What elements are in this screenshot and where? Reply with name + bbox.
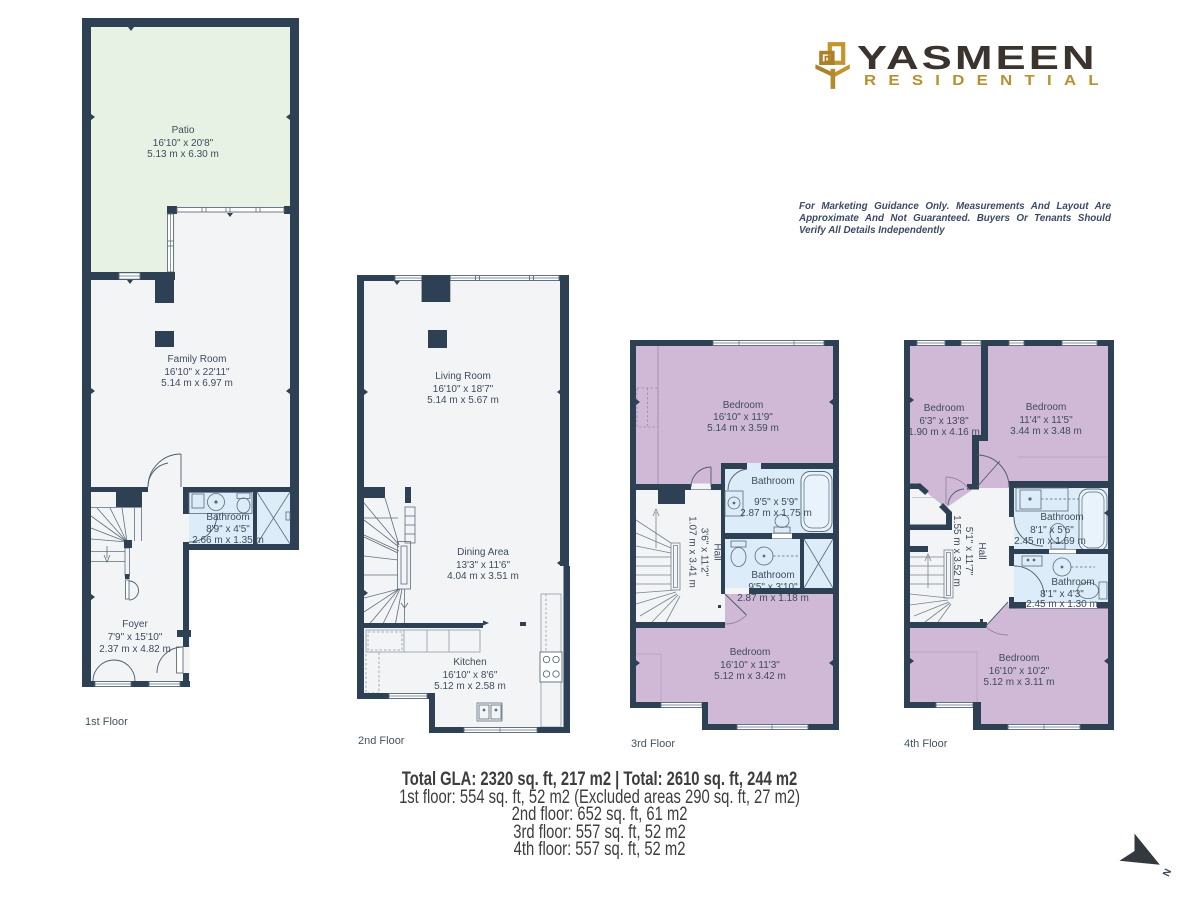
svg-text:16'10" x 20'8": 16'10" x 20'8"	[153, 138, 214, 149]
svg-text:16'10" x 11'9": 16'10" x 11'9"	[713, 412, 773, 423]
svg-text:Bathroom: Bathroom	[751, 476, 794, 487]
svg-text:Living Room: Living Room	[435, 371, 491, 382]
svg-text:2nd Floor: 2nd Floor	[358, 735, 405, 747]
svg-text:Bedroom: Bedroom	[924, 403, 965, 414]
svg-text:Hall: Hall	[976, 542, 987, 559]
svg-text:5.14 m x 6.97 m: 5.14 m x 6.97 m	[161, 378, 233, 389]
svg-text:3rd Floor: 3rd Floor	[631, 738, 675, 750]
svg-text:16'10" x 8'6": 16'10" x 8'6"	[443, 670, 498, 681]
svg-text:2.87 m x 1.75 m: 2.87 m x 1.75 m	[740, 508, 812, 519]
svg-text:5.12 m x 2.58 m: 5.12 m x 2.58 m	[434, 681, 506, 692]
svg-text:Bathroom: Bathroom	[206, 512, 249, 523]
svg-text:7'9" x 15'10": 7'9" x 15'10"	[108, 632, 163, 643]
svg-text:Bedroom: Bedroom	[1026, 402, 1067, 413]
svg-text:2.66 m x 1.35 m: 2.66 m x 1.35 m	[192, 535, 264, 546]
svg-text:8'9" x 4'5": 8'9" x 4'5"	[206, 524, 250, 535]
svg-text:Bedroom: Bedroom	[723, 400, 764, 411]
svg-text:5.13 m x 6.30 m: 5.13 m x 6.30 m	[147, 149, 219, 160]
svg-text:16'10" x 10'2": 16'10" x 10'2"	[989, 666, 1050, 677]
svg-text:Kitchen: Kitchen	[453, 657, 486, 668]
svg-text:16'10" x 18'7": 16'10" x 18'7"	[433, 384, 494, 395]
svg-text:6'3" x 13'8": 6'3" x 13'8"	[919, 416, 969, 427]
svg-text:1st Floor: 1st Floor	[85, 716, 128, 728]
svg-text:Dining Area: Dining Area	[457, 547, 509, 558]
svg-text:2.37 m x 4.82 m: 2.37 m x 4.82 m	[99, 644, 171, 655]
svg-text:1.07 m x 3.41 m: 1.07 m x 3.41 m	[687, 516, 698, 588]
svg-text:N: N	[1160, 866, 1173, 877]
svg-text:16'10" x 11'3": 16'10" x 11'3"	[720, 660, 780, 671]
svg-text:Bathroom: Bathroom	[751, 570, 794, 581]
svg-text:Bathroom: Bathroom	[1051, 577, 1094, 588]
svg-text:5.12 m x 3.42 m: 5.12 m x 3.42 m	[714, 671, 786, 682]
svg-text:Bedroom: Bedroom	[999, 653, 1040, 664]
svg-text:Bathroom: Bathroom	[1040, 512, 1083, 523]
svg-text:5.14 m x 5.67 m: 5.14 m x 5.67 m	[427, 395, 499, 406]
svg-text:8'1" x 5'6": 8'1" x 5'6"	[1030, 525, 1074, 536]
svg-text:13'3" x 11'6": 13'3" x 11'6"	[456, 560, 511, 571]
svg-text:Hall: Hall	[712, 543, 723, 560]
svg-text:5.12 m x 3.11 m: 5.12 m x 3.11 m	[984, 677, 1055, 688]
svg-text:Patio: Patio	[172, 125, 195, 136]
svg-text:2.87 m x 1.18 m: 2.87 m x 1.18 m	[737, 593, 809, 604]
svg-text:3.44 m x 3.48 m: 3.44 m x 3.48 m	[1010, 426, 1082, 437]
svg-text:9'5" x 5'9": 9'5" x 5'9"	[754, 497, 798, 508]
svg-text:Foyer: Foyer	[122, 619, 148, 630]
svg-text:3'6" x 11'2": 3'6" x 11'2"	[699, 528, 710, 577]
svg-text:16'10" x 22'11": 16'10" x 22'11"	[164, 367, 230, 378]
svg-text:5'1" x 11'7": 5'1" x 11'7"	[963, 527, 974, 576]
svg-text:Family Room: Family Room	[168, 354, 227, 365]
svg-text:4.04 m x 3.51 m: 4.04 m x 3.51 m	[447, 571, 519, 582]
svg-text:1.90 m x 4.16 m: 1.90 m x 4.16 m	[908, 427, 980, 438]
svg-text:4th Floor: 4th Floor	[904, 738, 948, 750]
svg-text:1.55 m x 3.52 m: 1.55 m x 3.52 m	[951, 515, 962, 587]
svg-text:2.45 m x 1.69 m: 2.45 m x 1.69 m	[1014, 536, 1086, 547]
svg-text:5.14 m x 3.59 m: 5.14 m x 3.59 m	[707, 423, 779, 434]
svg-text:11'4" x 11'5": 11'4" x 11'5"	[1019, 415, 1073, 426]
svg-text:2.45 m x 1.30 m: 2.45 m x 1.30 m	[1026, 599, 1098, 610]
svg-text:Bedroom: Bedroom	[730, 647, 771, 658]
